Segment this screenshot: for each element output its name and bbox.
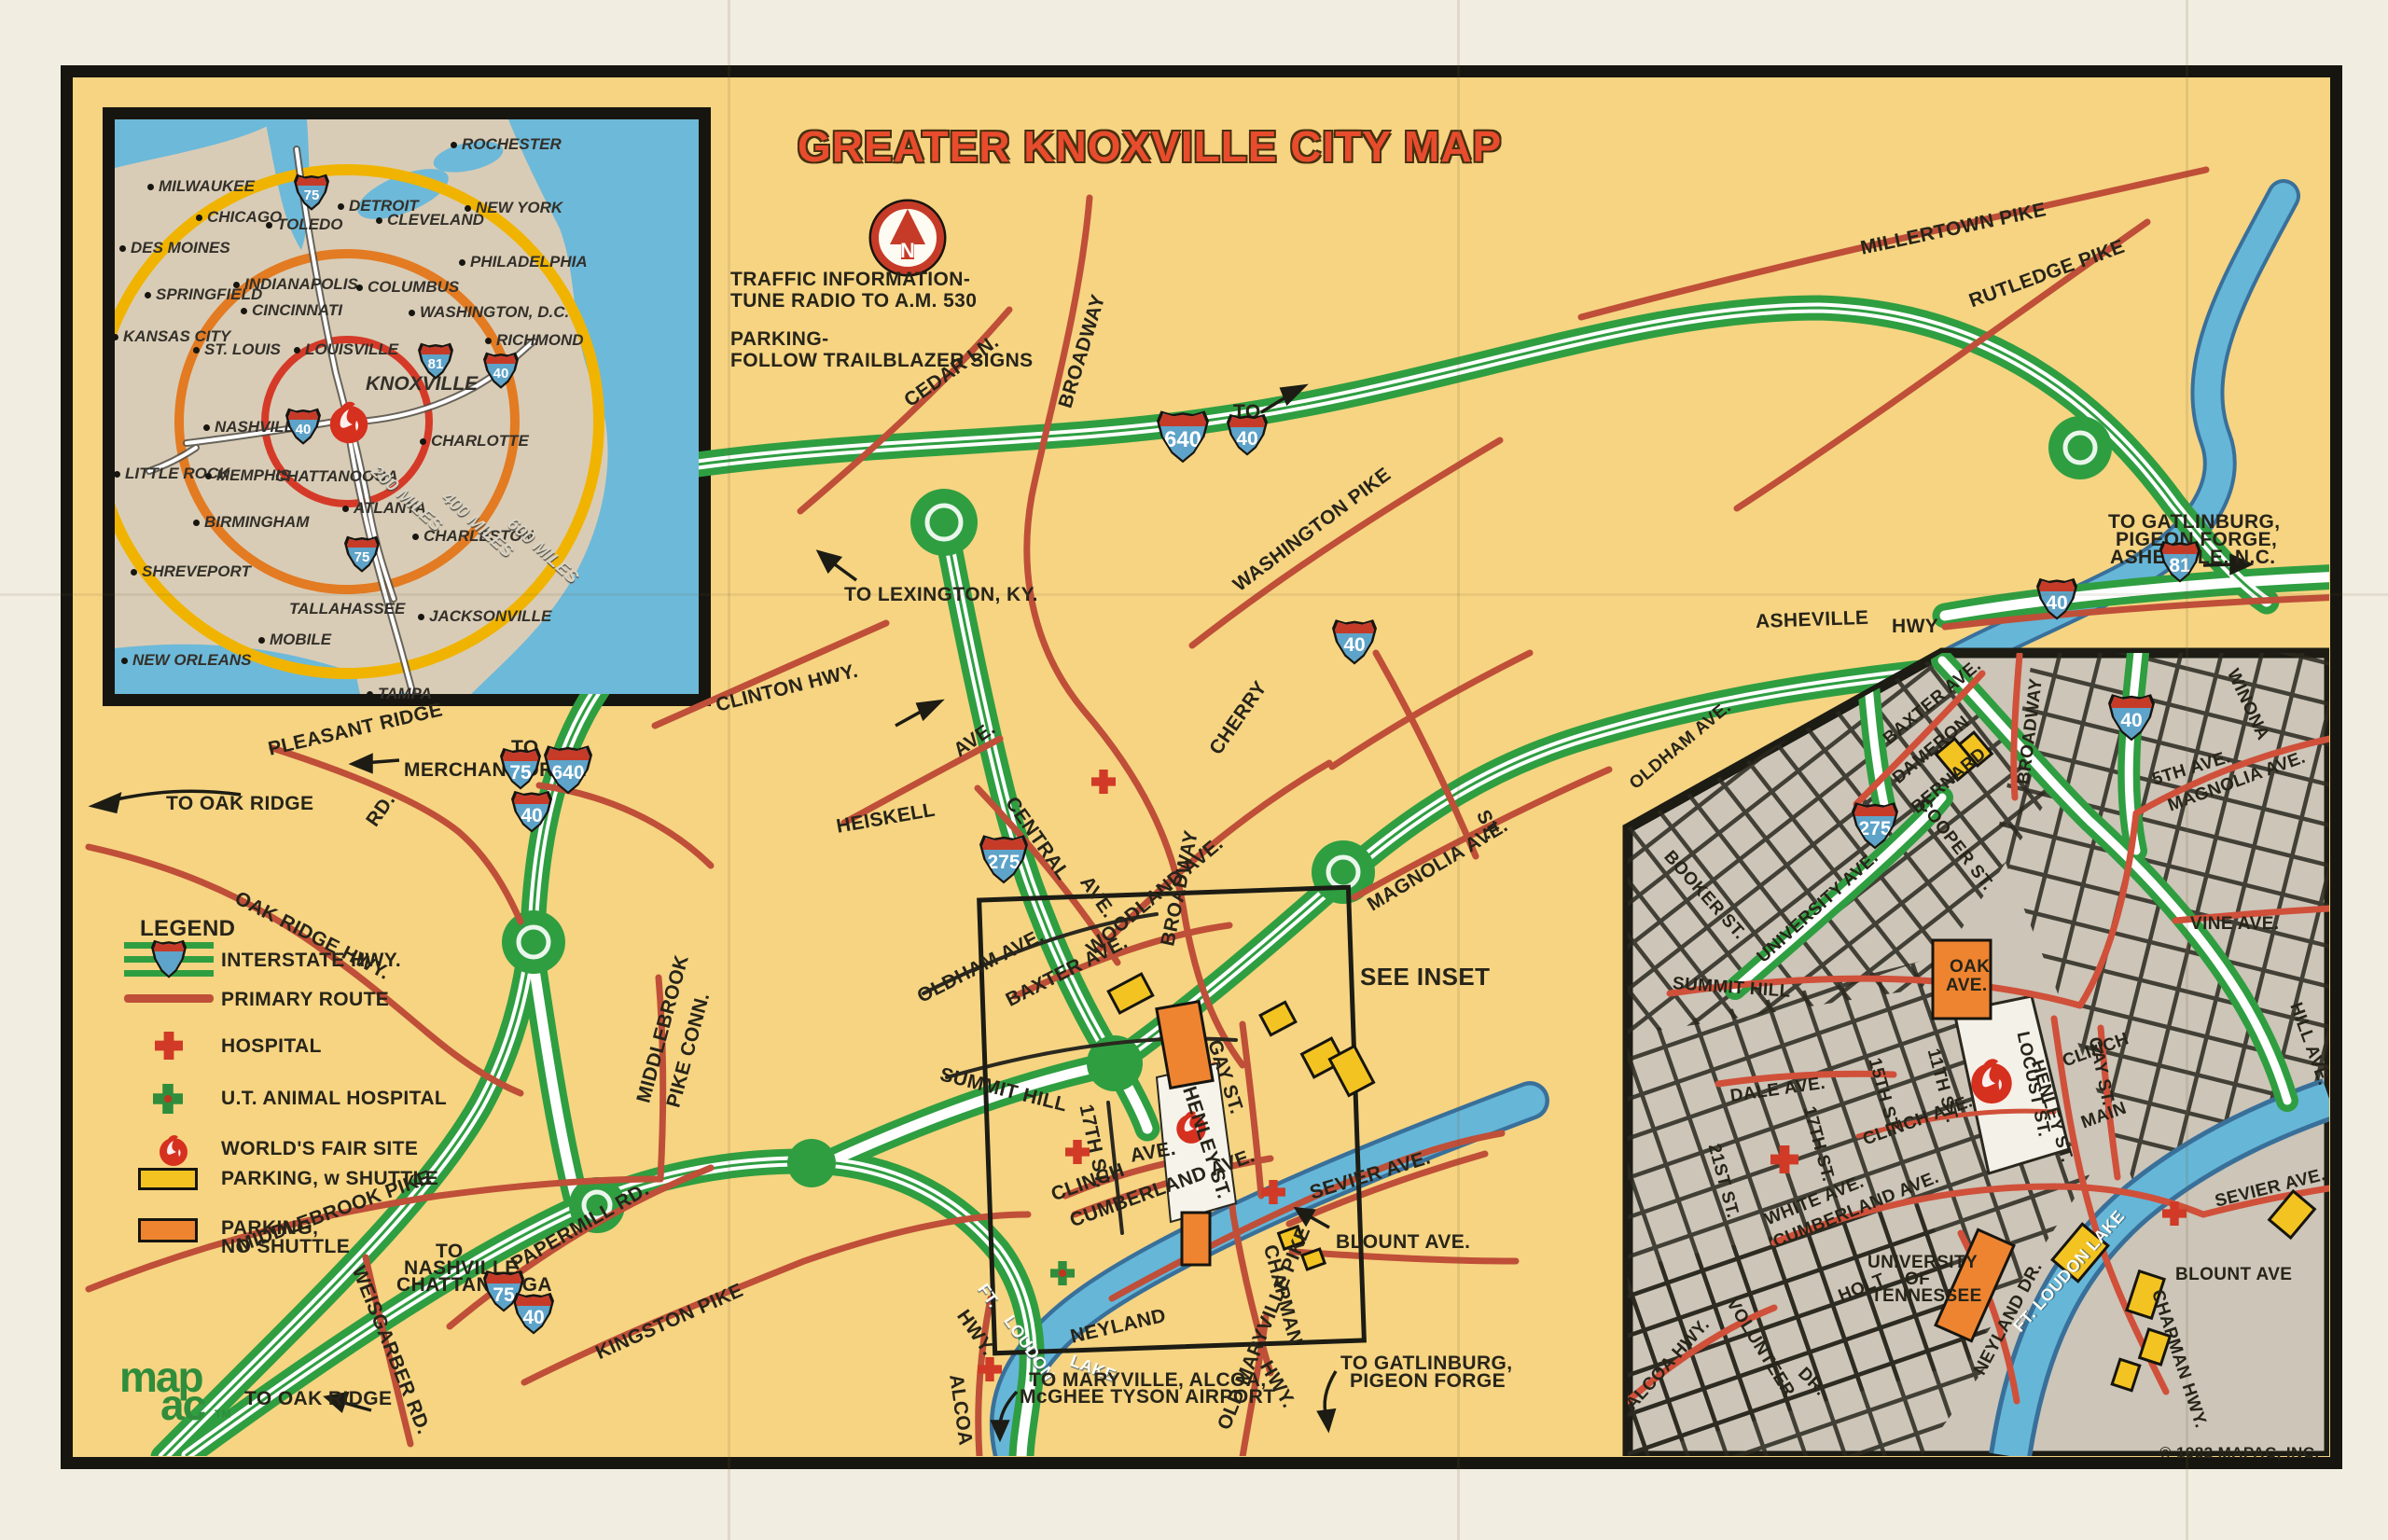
city-new-orleans: NEW ORLEANS [121,651,252,670]
inset-label-vine: VINE AVE. [2190,914,2279,935]
map-sheet: N GREATER KNOXVILLE CITY MAP TRAFFIC INF… [0,0,2388,1540]
legend-fair-label: WORLD'S FAIR SITE [221,1138,418,1160]
parking-no-shuttle-icon [138,1218,198,1242]
inset-label-oak-ave: AVE. [1946,976,1988,996]
city-des-moines: DES MOINES [119,239,230,257]
legend-ut-label: U.T. ANIMAL HOSPITAL [221,1088,447,1110]
inset-label-univ-3: TENNESSEE [1871,1286,1982,1307]
city-toledo: TOLEDO [266,215,343,234]
label-asheville-hwy: HWY [1892,616,1938,638]
city-louisville: LOUISVILLE [294,340,398,359]
copyright: © 1982 MAPAC, INC. [2159,1444,2320,1463]
primary-route-icon [124,994,214,1003]
city-milwaukee: MILWAUKEE [147,177,255,196]
city-charlotte: CHARLOTTE [420,432,529,451]
fold-crease [2186,0,2188,1540]
label-to-oak-ridge-south: TO OAK RIDGE [244,1388,392,1410]
city-st-louis: ST. LOUIS [193,340,281,359]
parking-shuttle-icon [138,1168,198,1190]
city-tallahassee: TALLAHASSEE [289,600,405,618]
parking-note-line1: PARKING- [730,328,828,351]
city-jacksonville: JACKSONVILLE [418,607,551,626]
city-shreveport: SHREVEPORT [131,562,251,581]
label-asheville: ASHEVILLE [1756,607,1869,633]
label-to-gatlinburg-2: PIGEON FORGE [1350,1370,1506,1393]
city-cincinnati: CINCINNATI [241,301,342,320]
city-rochester: ROCHESTER [451,135,562,154]
legend-primary-label: PRIMARY ROUTE [221,989,389,1011]
label-to-oak-ridge-north: TO OAK RIDGE [166,793,313,815]
label-to-nashville-3: CHATTANOOGA [396,1274,552,1297]
traffic-note-line1: TRAFFIC INFORMATION- [730,269,970,291]
mapac-logo-2: ac [160,1388,204,1422]
city-indianapolis: INDIANAPOLIS [233,275,358,294]
inset-label-blount: BLOUNT AVE [2175,1265,2292,1285]
label-blount-ave: BLOUNT AVE. [1336,1231,1470,1254]
label-see-inset: SEE INSET [1360,963,1490,992]
traffic-note-line2: TUNE RADIO TO A.M. 530 [730,290,977,312]
city-washington-dc: WASHINGTON, D.C. [409,303,569,322]
city-tampa: TAMPA [367,685,432,703]
interstate-hwy-icon [124,936,214,983]
fold-crease [0,593,2388,596]
city-columbus: COLUMBUS [356,278,459,297]
city-new-york: NEW YORK [465,199,562,217]
city-mobile: MOBILE [258,631,331,649]
mapac-logo-tm: TM [215,1410,230,1420]
city-birmingham: BIRMINGHAM [193,513,309,532]
city-philadelphia: PHILADELPHIA [459,253,588,271]
fold-crease [728,0,730,1540]
inset-label-oak: OAK [1950,957,1990,978]
page-title: GREATER KNOXVILLE CITY MAP [798,121,1502,172]
city-knoxville: KNOXVILLE [366,373,478,395]
fold-crease [1457,0,1460,1540]
city-richmond: RICHMOND [485,331,584,350]
legend-hospital-label: HOSPITAL [221,1035,322,1058]
